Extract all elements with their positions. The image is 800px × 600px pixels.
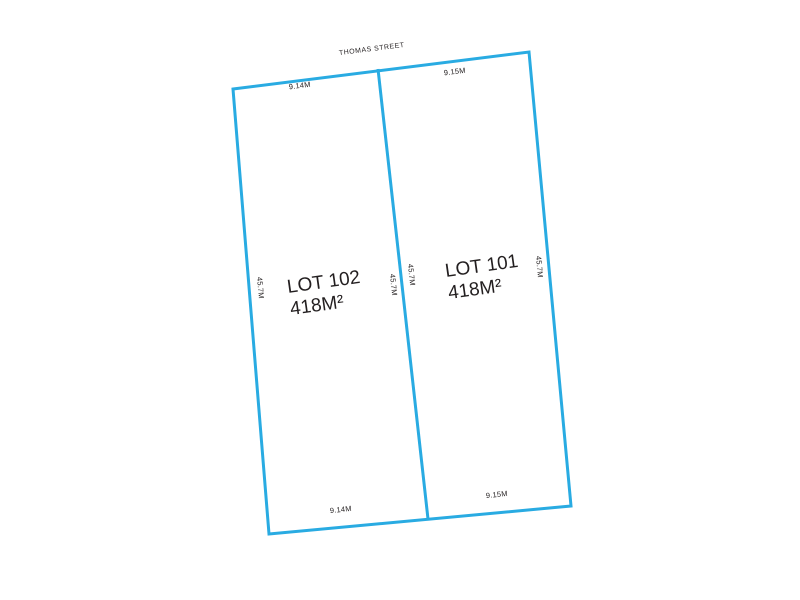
street-name-label: THOMAS STREET xyxy=(339,42,406,57)
lot-101-depth-right-label: 45.7M xyxy=(534,256,545,279)
lot-102-depth-left-label: 45.7M xyxy=(255,277,266,300)
subdivision-plan: THOMAS STREET 9.14M 9.14M 45.7M 45.7M LO… xyxy=(0,0,800,600)
subdivision-plan-canvas: THOMAS STREET 9.14M 9.14M 45.7M 45.7M LO… xyxy=(0,0,800,600)
